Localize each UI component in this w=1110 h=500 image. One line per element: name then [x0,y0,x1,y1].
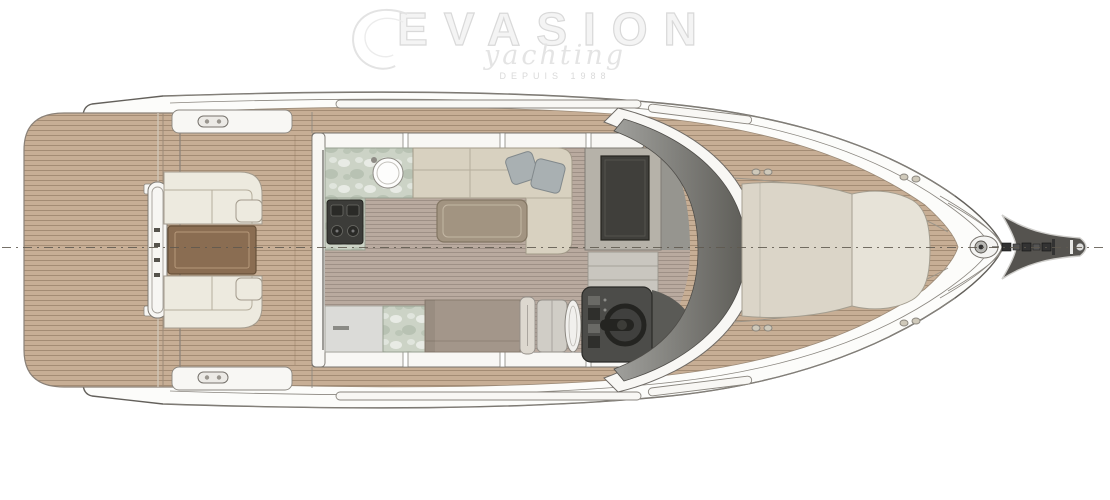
gunwale-panel-top [172,110,292,133]
salon-table [437,200,527,242]
cabin-wall-top [312,133,644,148]
cockpit-sofa-top [164,172,262,224]
cabin-bulkhead [312,133,325,367]
sunpad [742,182,930,317]
helm-console [582,287,652,362]
tv-screen [601,156,649,240]
helm-seat [537,300,567,352]
helm-seat-back [520,297,535,354]
throw-pillow [530,158,566,194]
sunpad-headrest [852,191,930,309]
berth-bench [425,300,520,352]
yacht-floorplan-page: EVASION yachting DEPUIS 1988 [0,0,1110,500]
aft-counter [325,306,383,352]
cleat-icon [198,116,228,127]
cleat-icon [198,372,228,383]
gunwale-panel-bottom [172,367,292,390]
yacht-top-view-plan [0,0,1110,500]
cockpit-table [168,226,256,274]
tv-cabinet [585,148,661,250]
galley-stove-icon [327,200,363,244]
cockpit-sofa-bottom [164,276,262,328]
helm-bolster [565,300,581,352]
aft-marble-counter [383,306,425,352]
